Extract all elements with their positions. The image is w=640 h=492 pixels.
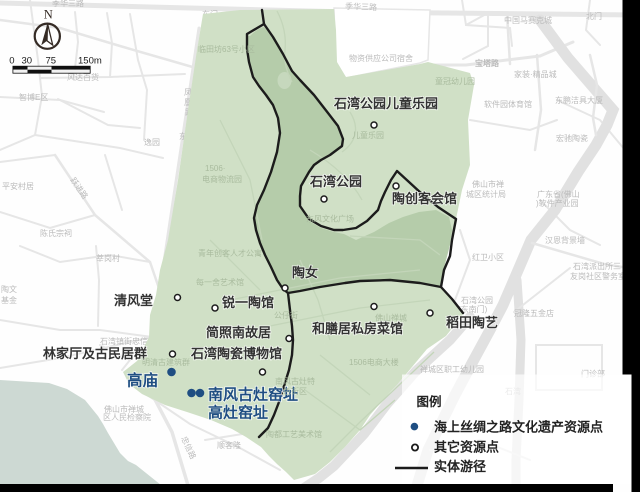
svg-text:童冠幼儿园: 童冠幼儿园 (435, 76, 475, 86)
svg-text:高灶窑址: 高灶窑址 (208, 404, 268, 422)
svg-text:东风文化广场: 东风文化广场 (306, 214, 354, 224)
svg-text:冠隆五金店: 冠隆五金店 (514, 308, 554, 318)
svg-text:150m: 150m (78, 56, 102, 67)
svg-text:临田坊63号小区: 临田坊63号小区 (198, 44, 255, 54)
svg-text:宏驰陶瓷: 宏驰陶瓷 (556, 133, 588, 143)
svg-text:电商物流园: 电商物流园 (202, 174, 242, 184)
svg-text:顺客隆: 顺客隆 (217, 440, 241, 450)
svg-text:汉恩背景墙: 汉恩背景墙 (545, 235, 585, 245)
svg-text:软件园体育馆: 软件园体育馆 (484, 99, 532, 109)
svg-text:季华三路: 季华三路 (345, 1, 377, 12)
svg-text:季华三路: 季华三路 (52, 0, 84, 8)
svg-text:中国马赛克城: 中国马赛克城 (504, 15, 552, 25)
svg-text:陶都工艺美术馆: 陶都工艺美术馆 (266, 429, 322, 439)
svg-text:稻田陶艺: 稻田陶艺 (446, 315, 498, 330)
svg-text:区人民检察院: 区人民检察院 (103, 412, 151, 422)
svg-text:N: N (44, 7, 53, 21)
svg-text:每一舍艺术馆: 每一舍艺术馆 (196, 277, 244, 287)
svg-text:北门: 北门 (586, 11, 602, 21)
svg-text:逸园: 逸园 (144, 137, 160, 147)
svg-text:石湾公园儿童乐园: 石湾公园儿童乐园 (333, 96, 438, 111)
svg-text:30: 30 (22, 56, 33, 67)
svg-text:石湾派出所三: 石湾派出所三 (573, 261, 621, 271)
svg-text:锐一陶馆: 锐一陶馆 (222, 295, 274, 310)
svg-text:明清古建筑群: 明清古建筑群 (142, 357, 190, 367)
svg-text:儿童乐园: 儿童乐园 (352, 130, 384, 140)
svg-text:林家厅及古民居群: 林家厅及古民居群 (43, 346, 147, 361)
svg-text:海上丝绸之路文化遗产资源点: 海上丝绸之路文化遗产资源点 (434, 420, 603, 435)
svg-text:南风古灶特: 南风古灶特 (275, 376, 315, 386)
svg-text:佛山禅城: 佛山禅城 (375, 313, 407, 323)
svg-text:陶创客会馆: 陶创客会馆 (392, 191, 457, 206)
svg-text:石湾镇街忠信: 石湾镇街忠信 (100, 336, 148, 346)
svg-text:75: 75 (46, 56, 57, 67)
svg-text:石湾公园: 石湾公园 (309, 174, 362, 189)
svg-text:禅城区职工幼儿园: 禅城区职工幼儿园 (420, 364, 484, 374)
svg-text:城区统计局: 城区统计局 (466, 189, 506, 199)
svg-text:莘岗村: 莘岗村 (96, 253, 120, 263)
svg-text:色街区: 色街区 (283, 386, 307, 396)
svg-text:陶女: 陶女 (292, 265, 318, 280)
svg-text:平安村居: 平安村居 (2, 181, 34, 191)
svg-text:1506·: 1506· (205, 164, 225, 173)
svg-text:宝塔路: 宝塔路 (475, 58, 500, 68)
svg-text:陶文: 陶文 (1, 284, 17, 294)
svg-text:高庙: 高庙 (127, 371, 158, 390)
svg-text:清风堂: 清风堂 (114, 293, 153, 308)
svg-text:)软件产业园: )软件产业园 (536, 198, 579, 208)
svg-text:其它资源点: 其它资源点 (434, 440, 499, 455)
svg-text:图例: 图例 (417, 394, 442, 409)
svg-text:基金: 基金 (1, 295, 17, 305)
svg-text:实体游径: 实体游径 (434, 459, 486, 474)
svg-text:0: 0 (9, 56, 14, 67)
svg-text:和膳居私房菜馆: 和膳居私房菜馆 (312, 321, 403, 336)
svg-text:佛山市禅: 佛山市禅 (472, 179, 504, 189)
svg-text:简照南故居: 简照南故居 (206, 325, 271, 340)
svg-text:家装·精品城: 家装·精品城 (514, 69, 557, 79)
svg-text:1506电商大楼: 1506电商大楼 (349, 357, 399, 367)
svg-text:青年创客人才公寓: 青年创客人才公寓 (198, 248, 262, 258)
svg-text:智博E区: 智博E区 (19, 92, 48, 102)
svg-text:公仔街: 公仔街 (274, 310, 298, 320)
svg-text:石湾陶瓷博物馆: 石湾陶瓷博物馆 (190, 346, 282, 361)
svg-text:广东省(佛山: 广东省(佛山 (537, 189, 580, 199)
svg-text:陈氏宗祠: 陈氏宗祠 (40, 228, 72, 238)
svg-text:友岗社区警务室: 友岗社区警务室 (570, 271, 626, 281)
svg-text:东鹏洁具大厦: 东鹏洁具大厦 (555, 95, 603, 105)
svg-text:红卫小区: 红卫小区 (472, 252, 504, 262)
svg-text:物资供应公司宿舍: 物资供应公司宿舍 (349, 53, 413, 63)
svg-text:石湾公园: 石湾公园 (461, 295, 493, 305)
